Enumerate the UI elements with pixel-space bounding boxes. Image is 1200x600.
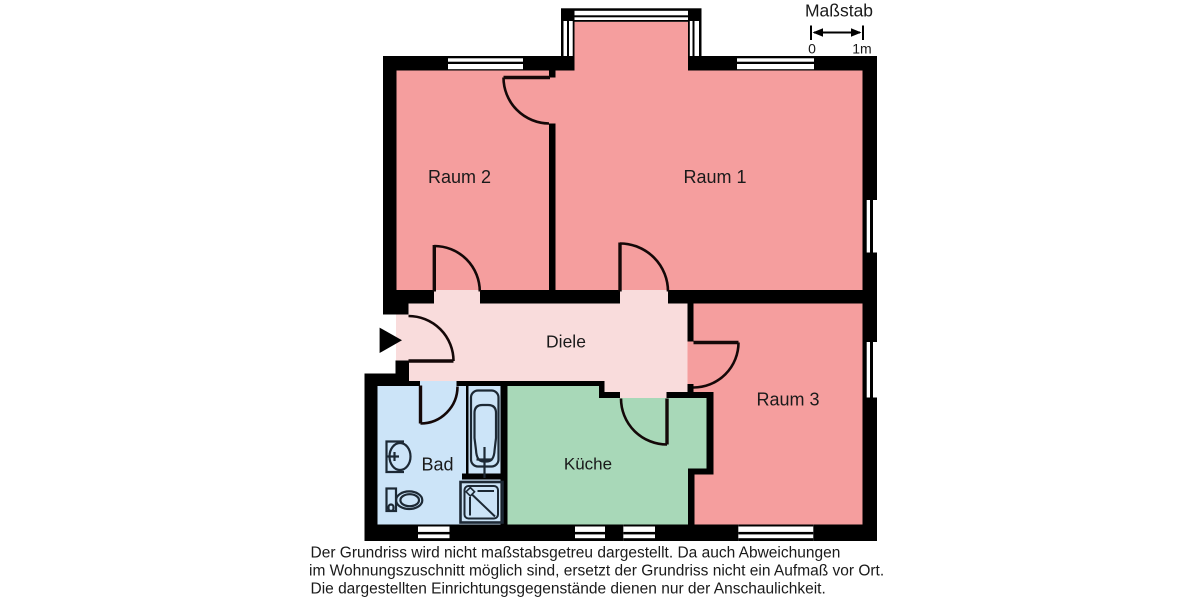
svg-text:Der Grundriss wird nicht maßst: Der Grundriss wird nicht maßstabsgetreu … [311,545,841,562]
svg-text:Raum 2: Raum 2 [428,167,491,187]
svg-text:Die dargestellten Einrichtungs: Die dargestellten Einrichtungsgegenständ… [311,581,826,598]
svg-text:Raum 3: Raum 3 [756,390,819,410]
svg-text:Bad: Bad [421,455,453,475]
svg-text:Raum 1: Raum 1 [683,167,746,187]
svg-text:Küche: Küche [564,455,612,474]
svg-text:im Wohnungszuschnitt möglich s: im Wohnungszuschnitt möglich sind, erset… [309,563,884,580]
svg-text:Diele: Diele [546,332,586,352]
svg-text:Maßstab: Maßstab [805,1,873,21]
svg-text:0: 0 [808,41,816,57]
svg-text:1m: 1m [852,41,871,57]
